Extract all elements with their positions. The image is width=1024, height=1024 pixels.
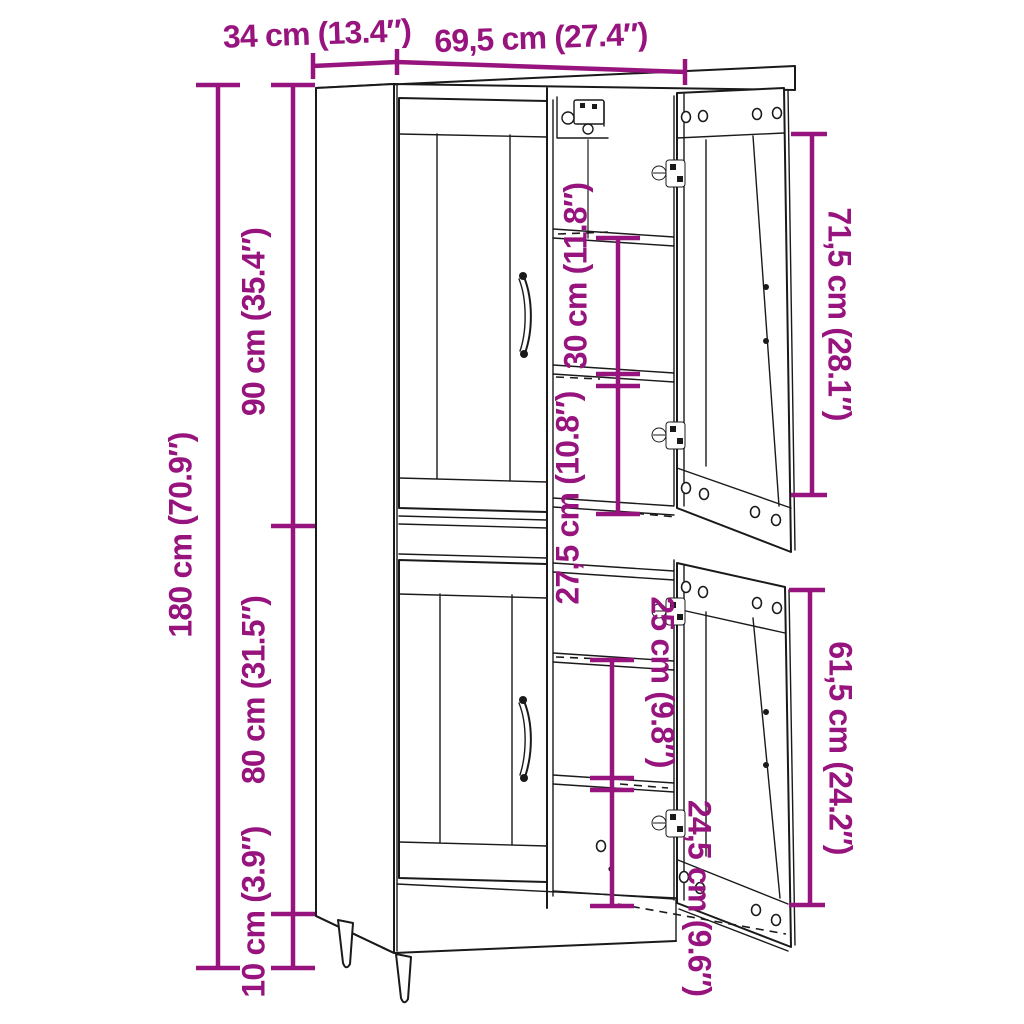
dim-label-leg-height: 10 cm (3.9″): [235, 826, 271, 997]
dim-label-width: 69,5 cm (27.4″): [434, 16, 649, 59]
dim-label-lower-shelf: 25 cm (9.8″): [645, 596, 681, 767]
leg-front-left: [396, 954, 411, 1002]
leg-back-left: [338, 920, 353, 967]
screw-dot: [763, 709, 769, 715]
hinge-icon: [652, 422, 685, 449]
hinge-icon: [652, 160, 685, 187]
dim-line-upper-shelves: [596, 238, 640, 514]
screw-dot: [763, 338, 769, 344]
dim-line-lower-shelves: [590, 660, 634, 906]
dim-line-section-heights: [271, 85, 315, 968]
top-hinge-assembly: [557, 97, 608, 138]
lower-left-door: [399, 560, 547, 882]
shelf-pin-hole: [597, 841, 606, 852]
dim-label-total-height: 180 cm (70.9″): [162, 432, 198, 637]
dim-label-lower-door: 61,5 cm (24.2″): [823, 641, 859, 854]
dim-label-lower-bottom: 24,5 cm (9.6″): [682, 800, 718, 996]
dim-label-depth: 34 cm (13.4″): [222, 12, 411, 55]
dim-line-lower-door: [789, 590, 825, 905]
furniture-dimension-diagram: 34 cm (13.4″) 69,5 cm (27.4″) 180 cm (70…: [0, 0, 1024, 1024]
screw-dot: [763, 762, 769, 768]
dim-line-total-height: [196, 85, 240, 968]
upper-left-door: [399, 98, 547, 512]
carcass-divider-lines: [399, 516, 547, 558]
dim-label-upper-shelf: 30 cm (11.8″): [557, 183, 593, 370]
dim-label-lower-section: 80 cm (31.5″): [235, 596, 271, 784]
cabinet-side-panel: [316, 84, 394, 953]
screw-dot: [763, 284, 769, 290]
dim-label-upper-door: 71,5 cm (28.1″): [822, 207, 858, 420]
dim-label-upper-lower-compartment: 27,5 cm (10.8″): [549, 391, 585, 604]
cabinet-dimension-drawing: 34 cm (13.4″) 69,5 cm (27.4″) 180 cm (70…: [0, 0, 1024, 1024]
dim-label-upper-section: 90 cm (35.4″): [235, 228, 271, 416]
hinge-icon: [652, 810, 685, 837]
